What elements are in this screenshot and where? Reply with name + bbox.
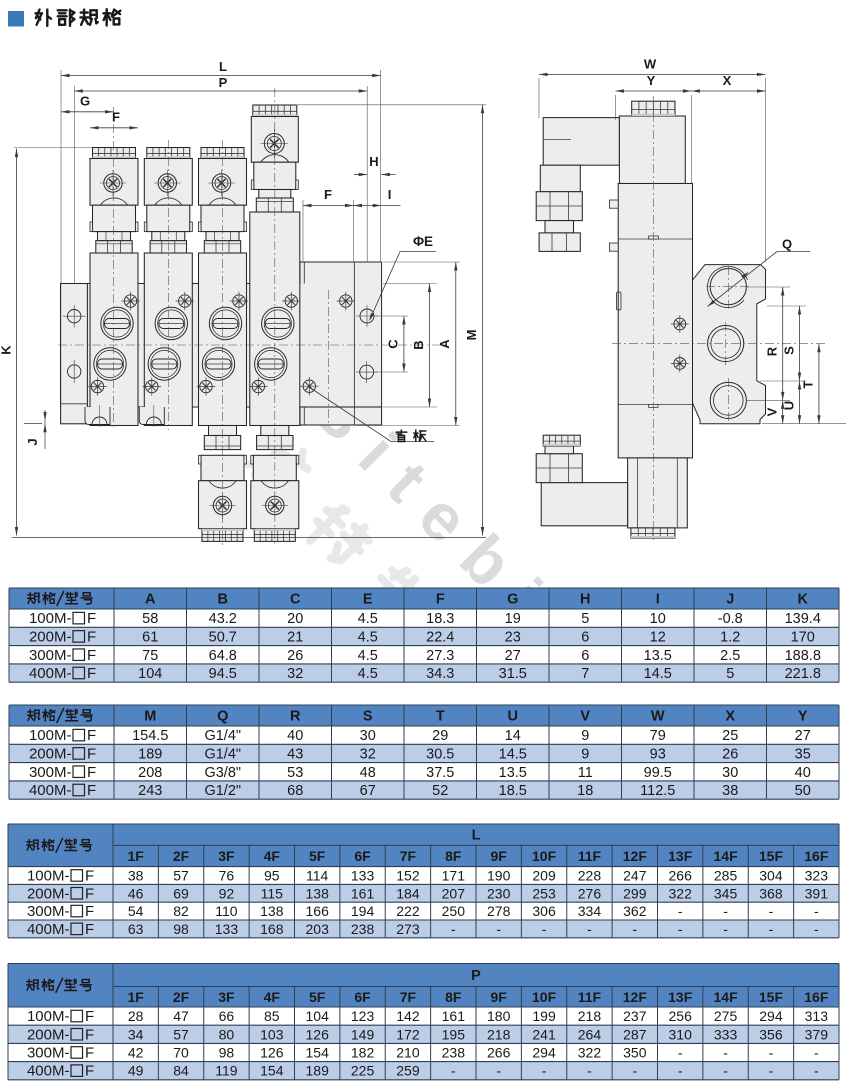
svg-text:48: 48	[360, 765, 376, 781]
svg-text:14F: 14F	[714, 848, 739, 864]
svg-text:4.5: 4.5	[358, 648, 378, 664]
svg-text:100M-: 100M-	[27, 1008, 70, 1025]
svg-text:368: 368	[759, 885, 783, 901]
svg-text:16F: 16F	[804, 989, 829, 1005]
svg-text:F: F	[112, 110, 120, 125]
svg-text:10F: 10F	[532, 989, 557, 1005]
svg-text:43: 43	[287, 746, 303, 762]
svg-text:278: 278	[487, 903, 511, 919]
svg-text:F: F	[85, 1008, 94, 1025]
svg-text:93: 93	[650, 746, 666, 762]
svg-text:V: V	[580, 709, 590, 725]
svg-text:67: 67	[360, 783, 376, 799]
svg-text:30.5: 30.5	[426, 746, 454, 762]
svg-text:S: S	[363, 709, 373, 725]
svg-text:57: 57	[173, 1026, 189, 1042]
svg-text:19: 19	[505, 611, 521, 627]
svg-text:300M-: 300M-	[29, 764, 72, 781]
svg-text:200M-: 200M-	[29, 628, 72, 645]
svg-text:85: 85	[264, 1008, 280, 1024]
svg-text:13.5: 13.5	[644, 648, 672, 664]
svg-text:92: 92	[219, 885, 235, 901]
svg-text:208: 208	[138, 765, 162, 781]
svg-text:400M-: 400M-	[27, 921, 70, 938]
svg-text:7F: 7F	[400, 989, 417, 1005]
svg-text:18.5: 18.5	[499, 783, 527, 799]
svg-text:14: 14	[505, 728, 521, 744]
svg-text:190: 190	[487, 868, 511, 884]
svg-text:294: 294	[759, 1008, 783, 1024]
svg-text:40: 40	[795, 765, 811, 781]
svg-text:114: 114	[306, 868, 329, 884]
svg-text:126: 126	[306, 1026, 330, 1042]
svg-text:94.5: 94.5	[209, 666, 237, 682]
svg-text:46: 46	[128, 885, 144, 901]
svg-text:69: 69	[173, 885, 189, 901]
svg-text:42: 42	[128, 1045, 144, 1061]
svg-text:66: 66	[219, 1008, 235, 1024]
svg-text:6F: 6F	[354, 989, 371, 1005]
svg-text:139.4: 139.4	[785, 611, 821, 627]
svg-text:Q: Q	[782, 237, 792, 252]
svg-text:V: V	[765, 407, 780, 416]
svg-text:243: 243	[138, 783, 162, 799]
svg-text:207: 207	[442, 885, 466, 901]
svg-text:98: 98	[173, 921, 189, 937]
svg-text:4.5: 4.5	[358, 629, 378, 645]
svg-text:34: 34	[128, 1026, 144, 1042]
svg-text:299: 299	[623, 885, 647, 901]
svg-text:104: 104	[138, 666, 162, 682]
svg-text:G3/8": G3/8"	[204, 765, 241, 781]
svg-text:82: 82	[173, 903, 189, 919]
svg-text:8F: 8F	[445, 848, 462, 864]
svg-text:276: 276	[578, 885, 602, 901]
svg-text:G1/4": G1/4"	[204, 728, 241, 744]
svg-text:F: F	[87, 782, 96, 799]
svg-text:154.5: 154.5	[132, 728, 168, 744]
svg-text:133: 133	[351, 868, 375, 884]
svg-text:6: 6	[581, 629, 589, 645]
svg-text:300M-: 300M-	[27, 903, 70, 920]
svg-text:43.2: 43.2	[209, 611, 237, 627]
svg-text:27: 27	[795, 728, 811, 744]
svg-text:379: 379	[805, 1026, 829, 1042]
svg-text:11: 11	[578, 765, 593, 781]
svg-text:79: 79	[650, 728, 666, 744]
svg-text:27.3: 27.3	[426, 648, 454, 664]
svg-text:31.5: 31.5	[499, 666, 527, 682]
svg-text:194: 194	[351, 903, 375, 919]
svg-text:40: 40	[287, 728, 303, 744]
svg-text:1.2: 1.2	[720, 629, 740, 645]
svg-text:W: W	[644, 57, 657, 72]
svg-text:237: 237	[623, 1008, 647, 1024]
svg-text:F: F	[87, 764, 96, 781]
svg-text:8F: 8F	[445, 989, 462, 1005]
svg-text:-: -	[678, 903, 683, 919]
svg-text:170: 170	[791, 629, 815, 645]
svg-text:15F: 15F	[759, 848, 784, 864]
svg-text:9F: 9F	[491, 989, 508, 1005]
svg-text:2F: 2F	[173, 848, 190, 864]
svg-text:27: 27	[505, 648, 521, 664]
svg-text:333: 333	[714, 1026, 738, 1042]
svg-text:22.4: 22.4	[426, 629, 454, 645]
svg-text:29: 29	[432, 728, 448, 744]
svg-text:222: 222	[396, 903, 420, 919]
svg-text:-: -	[723, 921, 728, 937]
svg-text:133: 133	[215, 921, 239, 937]
svg-text:200M-: 200M-	[27, 885, 70, 902]
svg-text:F: F	[87, 745, 96, 762]
svg-text:161: 161	[442, 1008, 466, 1024]
svg-text:250: 250	[442, 903, 466, 919]
svg-text:Y: Y	[798, 709, 808, 725]
svg-text:-: -	[451, 921, 456, 937]
svg-text:5F: 5F	[309, 989, 326, 1005]
svg-text:54: 54	[128, 903, 144, 919]
svg-text:-: -	[587, 921, 592, 937]
svg-text:-: -	[769, 903, 774, 919]
svg-text:64.8: 64.8	[209, 648, 237, 664]
svg-text:154: 154	[260, 1063, 284, 1079]
svg-text:F: F	[85, 903, 94, 920]
svg-text:B: B	[218, 592, 228, 608]
svg-text:345: 345	[714, 885, 738, 901]
svg-text:38: 38	[128, 868, 144, 884]
svg-text:-: -	[814, 1063, 819, 1079]
svg-text:182: 182	[351, 1045, 375, 1061]
svg-text:275: 275	[714, 1008, 738, 1024]
svg-text:273: 273	[396, 921, 420, 937]
svg-text:225: 225	[351, 1063, 375, 1079]
svg-text:110: 110	[215, 903, 238, 919]
svg-text:84: 84	[173, 1063, 189, 1079]
svg-text:J: J	[726, 592, 734, 608]
svg-text:-: -	[814, 903, 819, 919]
svg-text:12: 12	[650, 629, 666, 645]
svg-text:M: M	[464, 330, 479, 341]
svg-text:4F: 4F	[264, 848, 281, 864]
svg-text:C: C	[386, 339, 401, 349]
svg-text:112.5: 112.5	[640, 783, 675, 799]
svg-text:1F: 1F	[128, 848, 145, 864]
svg-text:-: -	[587, 1063, 592, 1079]
svg-text:-: -	[678, 921, 683, 937]
svg-text:13F: 13F	[668, 989, 693, 1005]
svg-text:I: I	[656, 592, 660, 608]
svg-text:154: 154	[306, 1045, 330, 1061]
svg-text:356: 356	[759, 1026, 783, 1042]
svg-text:Y: Y	[647, 73, 656, 88]
svg-text:241: 241	[532, 1026, 556, 1042]
svg-text:76: 76	[219, 868, 235, 884]
svg-text:52: 52	[432, 783, 448, 799]
svg-text:F: F	[85, 1026, 94, 1043]
svg-text:G1/2": G1/2"	[204, 783, 241, 799]
svg-text:25: 25	[722, 728, 738, 744]
svg-text:189: 189	[306, 1063, 330, 1079]
svg-text:F: F	[87, 610, 96, 627]
svg-text:T: T	[436, 709, 445, 725]
svg-text:168: 168	[260, 921, 284, 937]
svg-text:3F: 3F	[218, 989, 235, 1005]
svg-text:115: 115	[261, 885, 284, 901]
svg-text:-: -	[769, 1045, 774, 1061]
svg-text:400M-: 400M-	[27, 1063, 70, 1080]
svg-text:49: 49	[128, 1063, 144, 1079]
svg-text:-: -	[723, 1063, 728, 1079]
svg-text:247: 247	[623, 868, 647, 884]
svg-text:61: 61	[142, 629, 158, 645]
svg-text:U: U	[782, 401, 797, 410]
svg-text:7F: 7F	[400, 848, 417, 864]
svg-text:4F: 4F	[264, 989, 281, 1005]
svg-text:149: 149	[351, 1026, 375, 1042]
svg-text:X: X	[723, 73, 732, 88]
svg-text:306: 306	[532, 903, 556, 919]
svg-text:F: F	[436, 592, 445, 608]
svg-text:285: 285	[714, 868, 738, 884]
svg-text:200M-: 200M-	[29, 745, 72, 762]
svg-text:70: 70	[173, 1045, 189, 1061]
svg-text:5: 5	[581, 611, 589, 627]
svg-text:K: K	[798, 592, 809, 608]
svg-text:F: F	[87, 665, 96, 682]
svg-text:100M-: 100M-	[27, 868, 70, 885]
svg-text:138: 138	[306, 885, 330, 901]
svg-text:228: 228	[578, 868, 602, 884]
svg-text:12F: 12F	[623, 848, 648, 864]
svg-text:-: -	[678, 1063, 683, 1079]
svg-text:-: -	[723, 903, 728, 919]
svg-text:-0.8: -0.8	[718, 611, 743, 627]
svg-text:400M-: 400M-	[29, 782, 72, 799]
svg-text:300M-: 300M-	[27, 1045, 70, 1062]
svg-text:57: 57	[173, 868, 189, 884]
svg-text:S: S	[782, 346, 797, 355]
svg-text:7: 7	[581, 666, 589, 682]
svg-text:9: 9	[581, 728, 589, 744]
svg-text:H: H	[369, 154, 378, 169]
svg-text:188.8: 188.8	[785, 648, 821, 664]
svg-text:322: 322	[578, 1045, 602, 1061]
svg-text:256: 256	[669, 1008, 693, 1024]
svg-text:103: 103	[260, 1026, 284, 1042]
svg-text:362: 362	[623, 903, 647, 919]
svg-text:53: 53	[287, 765, 303, 781]
svg-text:323: 323	[805, 868, 829, 884]
svg-text:1F: 1F	[128, 989, 145, 1005]
svg-text:B: B	[411, 340, 426, 349]
svg-text:180: 180	[487, 1008, 511, 1024]
svg-text:J: J	[25, 438, 40, 445]
svg-text:184: 184	[396, 885, 420, 901]
svg-text:11F: 11F	[578, 989, 602, 1005]
svg-text:58: 58	[142, 611, 158, 627]
svg-text:221.8: 221.8	[785, 666, 821, 682]
svg-text:218: 218	[487, 1026, 511, 1042]
svg-text:C: C	[290, 592, 301, 608]
svg-text:266: 266	[487, 1045, 511, 1061]
svg-text:172: 172	[396, 1026, 420, 1042]
svg-text:189: 189	[138, 746, 162, 762]
svg-text:A: A	[145, 592, 156, 608]
svg-text:253: 253	[532, 885, 556, 901]
svg-text:F: F	[87, 647, 96, 664]
svg-text:20: 20	[287, 611, 303, 627]
svg-text:F: F	[85, 1063, 94, 1080]
svg-text:A: A	[437, 339, 452, 349]
svg-text:166: 166	[306, 903, 330, 919]
svg-text:80: 80	[219, 1026, 235, 1042]
svg-text:-: -	[632, 921, 637, 937]
svg-text:313: 313	[805, 1008, 829, 1024]
svg-text:334: 334	[578, 903, 602, 919]
svg-text:15F: 15F	[759, 989, 784, 1005]
svg-text:-: -	[542, 921, 547, 937]
svg-text:12F: 12F	[623, 989, 648, 1005]
svg-text:35: 35	[795, 746, 811, 762]
svg-text:-: -	[451, 1063, 456, 1079]
svg-text:199: 199	[532, 1008, 556, 1024]
svg-text:L: L	[219, 59, 227, 74]
svg-text:259: 259	[396, 1063, 420, 1079]
svg-text:G1/4": G1/4"	[204, 746, 241, 762]
svg-text:-: -	[496, 1063, 501, 1079]
svg-text:L: L	[472, 828, 481, 844]
svg-text:50.7: 50.7	[209, 629, 237, 645]
svg-text:P: P	[471, 968, 481, 984]
svg-text:5F: 5F	[309, 848, 326, 864]
svg-text:18.3: 18.3	[426, 611, 454, 627]
svg-text:14.5: 14.5	[644, 666, 672, 682]
svg-text:-: -	[723, 1045, 728, 1061]
svg-text:294: 294	[532, 1045, 556, 1061]
svg-text:32: 32	[287, 666, 303, 682]
svg-text:350: 350	[623, 1045, 647, 1061]
svg-text:F: F	[324, 187, 332, 202]
svg-text:238: 238	[351, 921, 375, 937]
svg-text:34.3: 34.3	[426, 666, 454, 682]
svg-text:2.5: 2.5	[720, 648, 740, 664]
svg-text:300M-: 300M-	[29, 647, 72, 664]
svg-text:13F: 13F	[668, 848, 693, 864]
svg-text:100M-: 100M-	[29, 610, 72, 627]
svg-text:2F: 2F	[173, 989, 190, 1005]
svg-text:30: 30	[722, 765, 738, 781]
svg-text:400M-: 400M-	[29, 665, 72, 682]
svg-text:-: -	[769, 921, 774, 937]
svg-text:3F: 3F	[218, 848, 235, 864]
svg-text:230: 230	[487, 885, 511, 901]
svg-text:6: 6	[581, 648, 589, 664]
svg-text:-: -	[496, 921, 501, 937]
svg-text:37.5: 37.5	[426, 765, 454, 781]
svg-text:I: I	[388, 187, 392, 202]
svg-text:14F: 14F	[714, 989, 739, 1005]
svg-text:X: X	[725, 709, 735, 725]
svg-text:-: -	[814, 1045, 819, 1061]
svg-text:F: F	[85, 868, 94, 885]
svg-text:F: F	[85, 921, 94, 938]
svg-text:K: K	[0, 345, 14, 355]
svg-text:E: E	[363, 592, 373, 608]
svg-text:26: 26	[287, 648, 303, 664]
svg-text:209: 209	[532, 868, 556, 884]
svg-text:10: 10	[650, 611, 666, 627]
svg-text:50: 50	[795, 783, 811, 799]
svg-text:391: 391	[805, 885, 829, 901]
svg-text:9F: 9F	[491, 848, 508, 864]
svg-text:126: 126	[260, 1045, 284, 1061]
svg-text:68: 68	[287, 783, 303, 799]
svg-text:304: 304	[759, 868, 783, 884]
svg-text:18: 18	[577, 783, 593, 799]
svg-text:U: U	[508, 709, 518, 725]
svg-text:200M-: 200M-	[27, 1026, 70, 1043]
svg-text:195: 195	[442, 1026, 466, 1042]
svg-text:G: G	[507, 592, 518, 608]
svg-text:F: F	[85, 885, 94, 902]
svg-text:142: 142	[396, 1008, 420, 1024]
svg-text:16F: 16F	[804, 848, 829, 864]
svg-text:310: 310	[669, 1026, 693, 1042]
svg-text:9: 9	[581, 746, 589, 762]
svg-text:23: 23	[505, 629, 521, 645]
svg-text:P: P	[219, 75, 228, 90]
svg-text:264: 264	[578, 1026, 602, 1042]
svg-text:11F: 11F	[578, 848, 602, 864]
svg-text:99.5: 99.5	[644, 765, 672, 781]
svg-text:R: R	[290, 709, 301, 725]
svg-text:152: 152	[396, 868, 420, 884]
svg-text:119: 119	[215, 1063, 238, 1079]
svg-text:-: -	[814, 921, 819, 937]
svg-text:G: G	[80, 94, 90, 109]
svg-text:T: T	[801, 380, 816, 388]
svg-text:75: 75	[142, 648, 158, 664]
svg-text:38: 38	[722, 783, 738, 799]
svg-text:13.5: 13.5	[499, 765, 527, 781]
svg-text:6F: 6F	[354, 848, 371, 864]
svg-text:F: F	[87, 628, 96, 645]
svg-text:4.5: 4.5	[358, 666, 378, 682]
svg-text:-: -	[542, 1063, 547, 1079]
svg-text:266: 266	[669, 868, 693, 884]
svg-text:F: F	[87, 727, 96, 744]
svg-text:100M-: 100M-	[29, 727, 72, 744]
svg-text:98: 98	[219, 1045, 235, 1061]
svg-text:26: 26	[722, 746, 738, 762]
svg-text:210: 210	[396, 1045, 420, 1061]
svg-text:-: -	[769, 1063, 774, 1079]
svg-text:218: 218	[578, 1008, 602, 1024]
svg-text:-: -	[632, 1063, 637, 1079]
svg-text:F: F	[85, 1045, 94, 1062]
svg-text:28: 28	[128, 1008, 144, 1024]
svg-text:238: 238	[442, 1045, 466, 1061]
svg-text:32: 32	[360, 746, 376, 762]
svg-text:287: 287	[623, 1026, 647, 1042]
svg-text:30: 30	[360, 728, 376, 744]
svg-text:10F: 10F	[532, 848, 557, 864]
svg-text:H: H	[580, 592, 590, 608]
svg-text:Q: Q	[217, 709, 228, 725]
svg-text:R: R	[765, 346, 780, 356]
svg-text:95: 95	[264, 868, 280, 884]
